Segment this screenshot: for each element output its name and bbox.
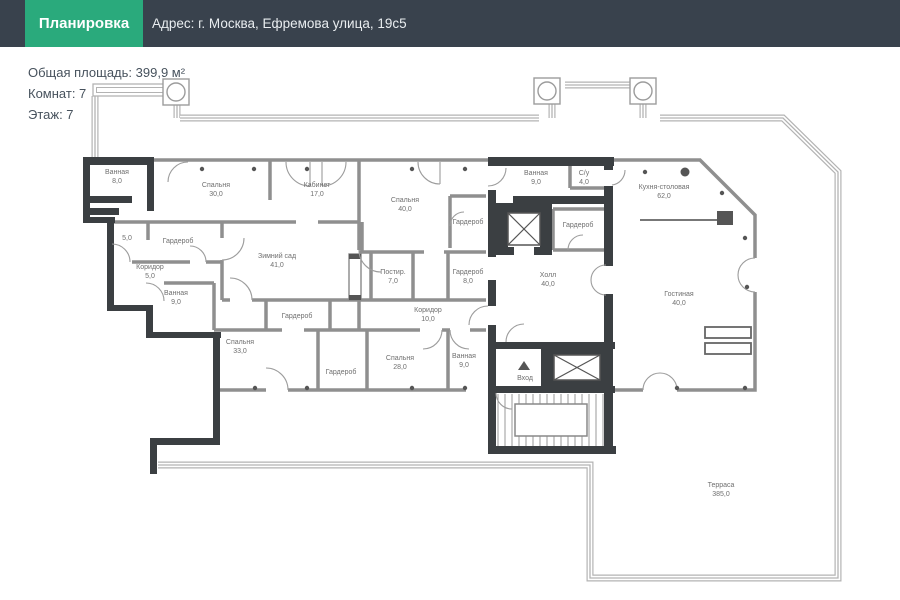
total-area-text: Общая площадь: 399,9 м² xyxy=(28,62,185,83)
room-area: 9,0 xyxy=(531,179,541,186)
room-label: Коридор xyxy=(414,307,442,314)
room-area: 4,0 xyxy=(579,179,589,186)
room-area: 385,0 xyxy=(712,491,730,498)
room-label: Спальня xyxy=(226,339,254,346)
entrance-triangle-icon xyxy=(518,361,530,370)
room-area: 5,0 xyxy=(122,235,132,242)
room-label: Кабинет xyxy=(304,181,331,189)
room-label: Холл xyxy=(540,272,557,279)
floor-text: Этаж: 7 xyxy=(28,104,185,125)
room-area: 62,0 xyxy=(657,193,671,200)
room-area: 9,0 xyxy=(171,299,181,306)
room-label: Ванная xyxy=(105,169,129,176)
elevator-icon xyxy=(496,203,552,255)
room-label: Терраса xyxy=(708,482,735,489)
room-area: 10,0 xyxy=(421,316,435,323)
room-label: Спальня xyxy=(386,355,414,362)
room-area: 17,0 xyxy=(310,191,324,198)
room-label: Гардероб xyxy=(453,218,484,226)
room-label: Кухня-столовая xyxy=(639,184,690,191)
elevator-icon xyxy=(548,349,606,386)
room-label: Гардероб xyxy=(282,312,313,320)
room-area: 9,0 xyxy=(459,362,469,369)
room-area: 30,0 xyxy=(209,191,223,198)
room-label: С/у xyxy=(579,170,590,177)
room-label: Спальня xyxy=(391,197,419,204)
room-area: 28,0 xyxy=(393,364,407,371)
room-label: Гардероб xyxy=(163,237,194,245)
header-bar: Планировка Адрес: г. Москва, Ефремова ул… xyxy=(0,0,900,47)
room-label: Ванная xyxy=(524,170,548,177)
room-label: Гостиная xyxy=(664,291,694,298)
tab-planirovka[interactable]: Планировка xyxy=(25,0,143,47)
room-label: Постир. xyxy=(380,269,405,276)
rooms-count-text: Комнат: 7 xyxy=(28,83,185,104)
room-label: Гардероб xyxy=(563,221,594,229)
floorplan-page: Ванная 8,0 Спальня 30,0 Кабинет 17,0 Спа… xyxy=(0,0,900,600)
stairs xyxy=(498,394,603,446)
room-area: 40,0 xyxy=(672,300,686,307)
room-area: 41,0 xyxy=(270,262,284,269)
room-label: Ванная xyxy=(164,290,188,297)
room-label: Вход xyxy=(517,375,533,382)
room-area: 40,0 xyxy=(398,206,412,213)
room-area: 8,0 xyxy=(112,178,122,185)
summary-info: Общая площадь: 399,9 м² Комнат: 7 Этаж: … xyxy=(28,62,185,125)
room-label: Гардероб xyxy=(453,268,484,276)
room-area: 40,0 xyxy=(541,281,555,288)
room-area: 7,0 xyxy=(388,278,398,285)
address-text: Адрес: г. Москва, Ефремова улица, 19с5 xyxy=(152,0,407,47)
room-label: Зимний сад xyxy=(258,252,296,260)
room-area: 33,0 xyxy=(233,348,247,355)
room-label: Ванная xyxy=(452,353,476,360)
room-label: Спальня xyxy=(202,182,230,189)
room-area: 5,0 xyxy=(145,273,155,280)
room-label: Коридор xyxy=(136,264,164,271)
room-area: 8,0 xyxy=(463,278,473,285)
room-label: Гардероб xyxy=(326,368,357,376)
